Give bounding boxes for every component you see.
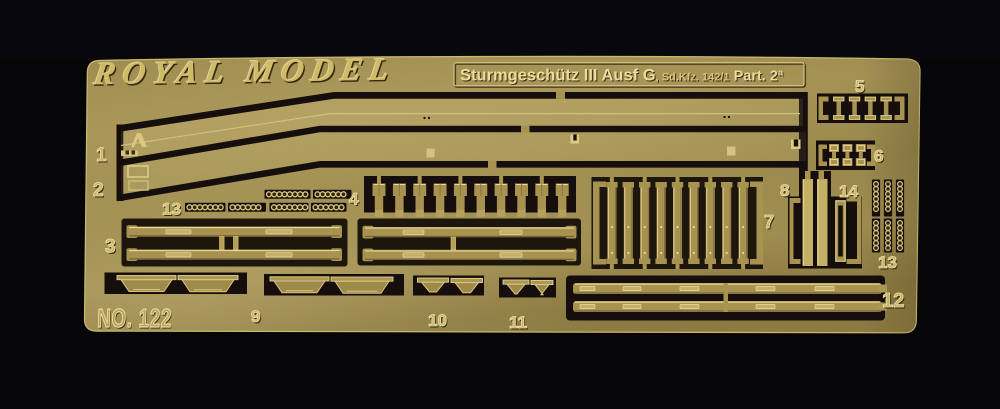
svg-text:7: 7: [764, 212, 774, 232]
svg-text:8: 8: [780, 181, 789, 200]
svg-text:Sturmgeschütz III Ausf G, Sd.K: Sturmgeschütz III Ausf G, Sd.Kfz. 142/1 …: [460, 67, 784, 85]
svg-text:3: 3: [105, 237, 116, 258]
svg-text:6: 6: [874, 147, 883, 166]
svg-text:13: 13: [878, 253, 897, 272]
svg-text:ROYAL MODEL: ROYAL MODEL: [91, 51, 399, 92]
svg-text:4: 4: [349, 190, 359, 209]
svg-text:12: 12: [882, 290, 904, 312]
svg-text:10: 10: [428, 311, 447, 330]
svg-text:14: 14: [839, 182, 858, 201]
svg-text:1: 1: [96, 145, 107, 166]
svg-text:2: 2: [93, 180, 104, 201]
svg-text:11: 11: [509, 313, 527, 332]
svg-text:NO. 122: NO. 122: [97, 303, 173, 333]
svg-text:5: 5: [855, 77, 864, 96]
svg-text:13: 13: [162, 200, 181, 219]
svg-text:9: 9: [251, 307, 260, 326]
